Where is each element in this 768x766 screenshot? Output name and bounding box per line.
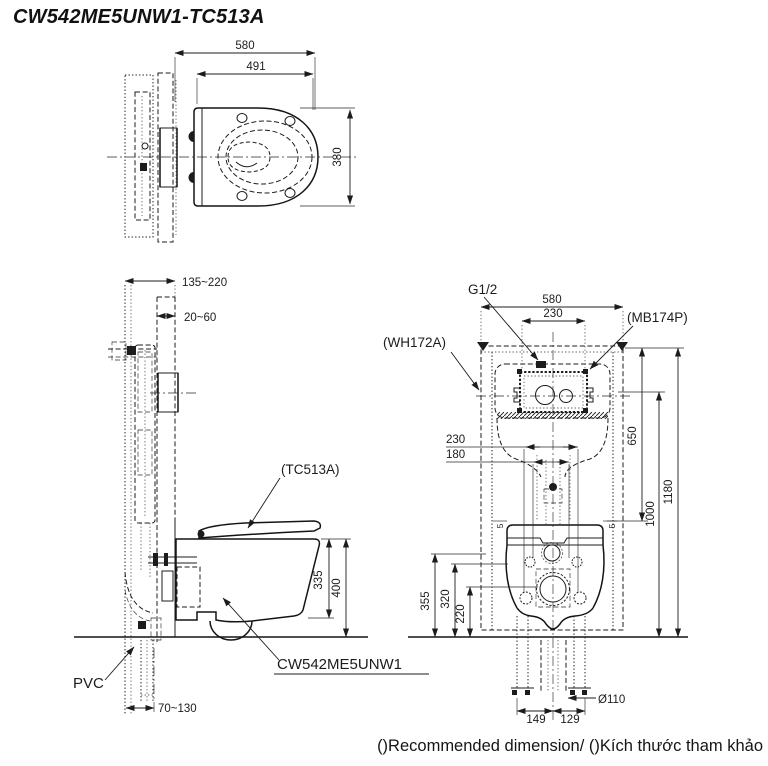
dim-seat-length: 491: [246, 61, 265, 73]
side-view-tank: [108, 342, 197, 640]
front-view-bowl: [506, 525, 604, 629]
corrugated-connector-plan: [160, 128, 177, 187]
front-view-dimensions: 580 230 230 180 650: [420, 294, 684, 726]
top-view-bowl: [107, 108, 357, 206]
label-flush-plate: (MB174P): [627, 310, 688, 325]
side-view: 135~220 20~60 335 400 70~130 (TC513A) CW…: [73, 277, 429, 715]
dim-overall-depth: 580: [235, 40, 254, 52]
dim-h-supply: 355: [420, 591, 432, 610]
dim-frame-width: 580: [542, 294, 561, 306]
dim-h-bolts: 320: [440, 589, 452, 608]
supply-connection: [536, 361, 546, 368]
side-view-mounting: [138, 553, 200, 629]
footnote: ()Recommended dimension/ ()Kích thước th…: [0, 737, 763, 756]
label-bowl-model: CW542ME5UNW1: [277, 656, 402, 673]
dim-plate-height: 1000: [645, 501, 657, 527]
dim-holes-inner: 180: [446, 449, 465, 461]
dim-h-drain: 220: [455, 604, 467, 623]
dim-holes-outer: 230: [446, 434, 465, 446]
dim-wall-cavity: 135~220: [182, 277, 227, 289]
label-carrier-frame: (WH172A): [383, 335, 446, 350]
side-view-labels: (TC513A) CW542ME5UNW1 PVC: [73, 462, 429, 692]
dim-plate-width: 230: [543, 308, 562, 320]
dim-bowl-width: 380: [332, 147, 344, 166]
label-seat: (TC513A): [281, 462, 340, 477]
dim-drain-offset: 70~130: [158, 703, 197, 715]
top-view: 580 491 380: [107, 40, 357, 242]
side-view-dimensions: 135~220 20~60 335 400 70~130: [125, 277, 351, 715]
dim-rim-to-bottom: 335: [313, 570, 325, 589]
dim-frame-height: 1180: [663, 480, 675, 505]
label-supply-g12: G1/2: [468, 282, 497, 297]
dim-gap-left: 5: [495, 523, 505, 528]
top-view-carrier: [125, 73, 177, 242]
dim-gap-right: 5: [607, 523, 617, 528]
technical-drawing-page: CW542ME5UNW1-TC513A: [0, 0, 768, 766]
dim-frame-to-seat: 650: [627, 426, 639, 445]
front-view: 580 230 230 180 650: [383, 282, 688, 726]
dim-wall-finish: 20~60: [184, 312, 216, 324]
dim-rim-to-floor: 400: [331, 578, 343, 597]
dim-leg-left: 149: [526, 714, 545, 726]
side-view-toilet: [176, 521, 320, 640]
drawing-canvas: 580 491 380: [0, 0, 768, 766]
dim-drain-dia: Ø110: [598, 694, 625, 706]
dim-leg-right: 129: [560, 714, 579, 726]
label-pvc: PVC: [73, 675, 104, 692]
